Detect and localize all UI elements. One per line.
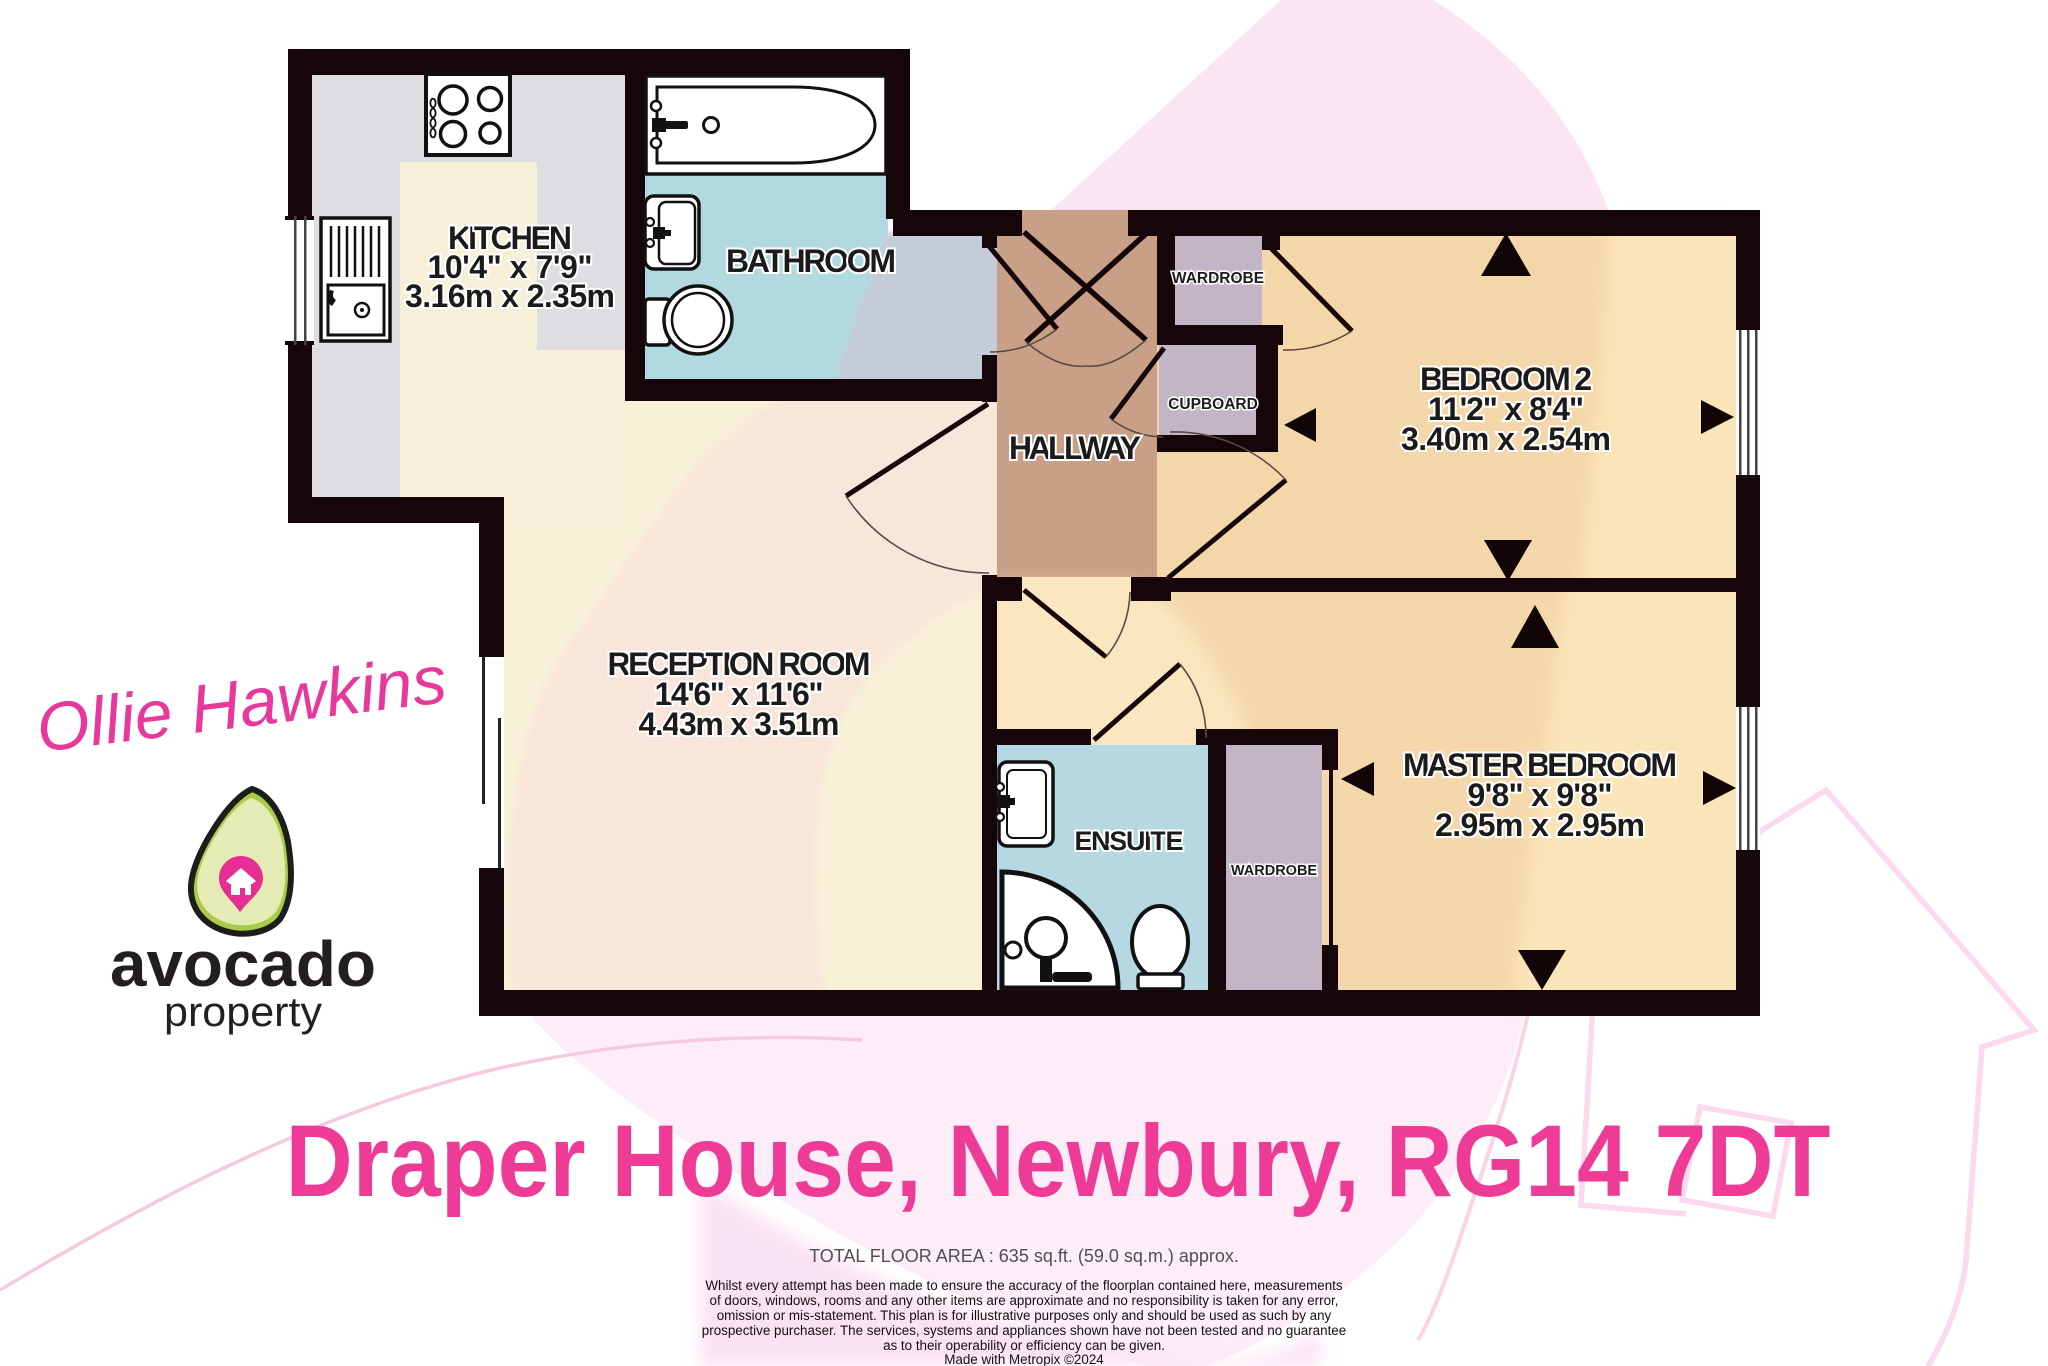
svg-text:ENSUITE: ENSUITE [1075, 826, 1184, 856]
svg-text:HALLWAY: HALLWAY [1009, 430, 1141, 466]
svg-text:Whilst every attempt has been: Whilst every attempt has been made to en… [705, 1278, 1342, 1293]
svg-text:omission or mis-statement. Thi: omission or mis-statement. This plan is … [717, 1308, 1332, 1323]
svg-text:of doors, windows, rooms and a: of doors, windows, rooms and any other i… [710, 1293, 1339, 1308]
svg-text:WARDROBE: WARDROBE [1231, 863, 1318, 879]
svg-text:Draper House, Newbury, RG14 7D: Draper House, Newbury, RG14 7DT [286, 1104, 1831, 1218]
svg-text:property: property [164, 988, 322, 1035]
svg-text:3.16m x 2.35m: 3.16m x 2.35m [405, 278, 615, 314]
svg-text:4.43m x 3.51m: 4.43m x 3.51m [639, 706, 840, 742]
svg-text:BATHROOM: BATHROOM [726, 243, 896, 279]
svg-text:WARDROBE: WARDROBE [1172, 270, 1264, 287]
svg-text:Made with Metropix ©2024: Made with Metropix ©2024 [944, 1352, 1104, 1366]
svg-text:CUPBOARD: CUPBOARD [1168, 396, 1258, 413]
svg-text:TOTAL FLOOR AREA : 635 sq.ft.: TOTAL FLOOR AREA : 635 sq.ft. (59.0 sq.m… [809, 1246, 1239, 1266]
svg-text:2.95m x 2.95m: 2.95m x 2.95m [1435, 807, 1645, 843]
svg-text:3.40m x 2.54m: 3.40m x 2.54m [1401, 421, 1611, 457]
svg-text:prospective purchaser. The ser: prospective purchaser. The services, sys… [702, 1323, 1346, 1338]
svg-text:as to their operability or eff: as to their operability or efficiency ca… [883, 1338, 1165, 1353]
